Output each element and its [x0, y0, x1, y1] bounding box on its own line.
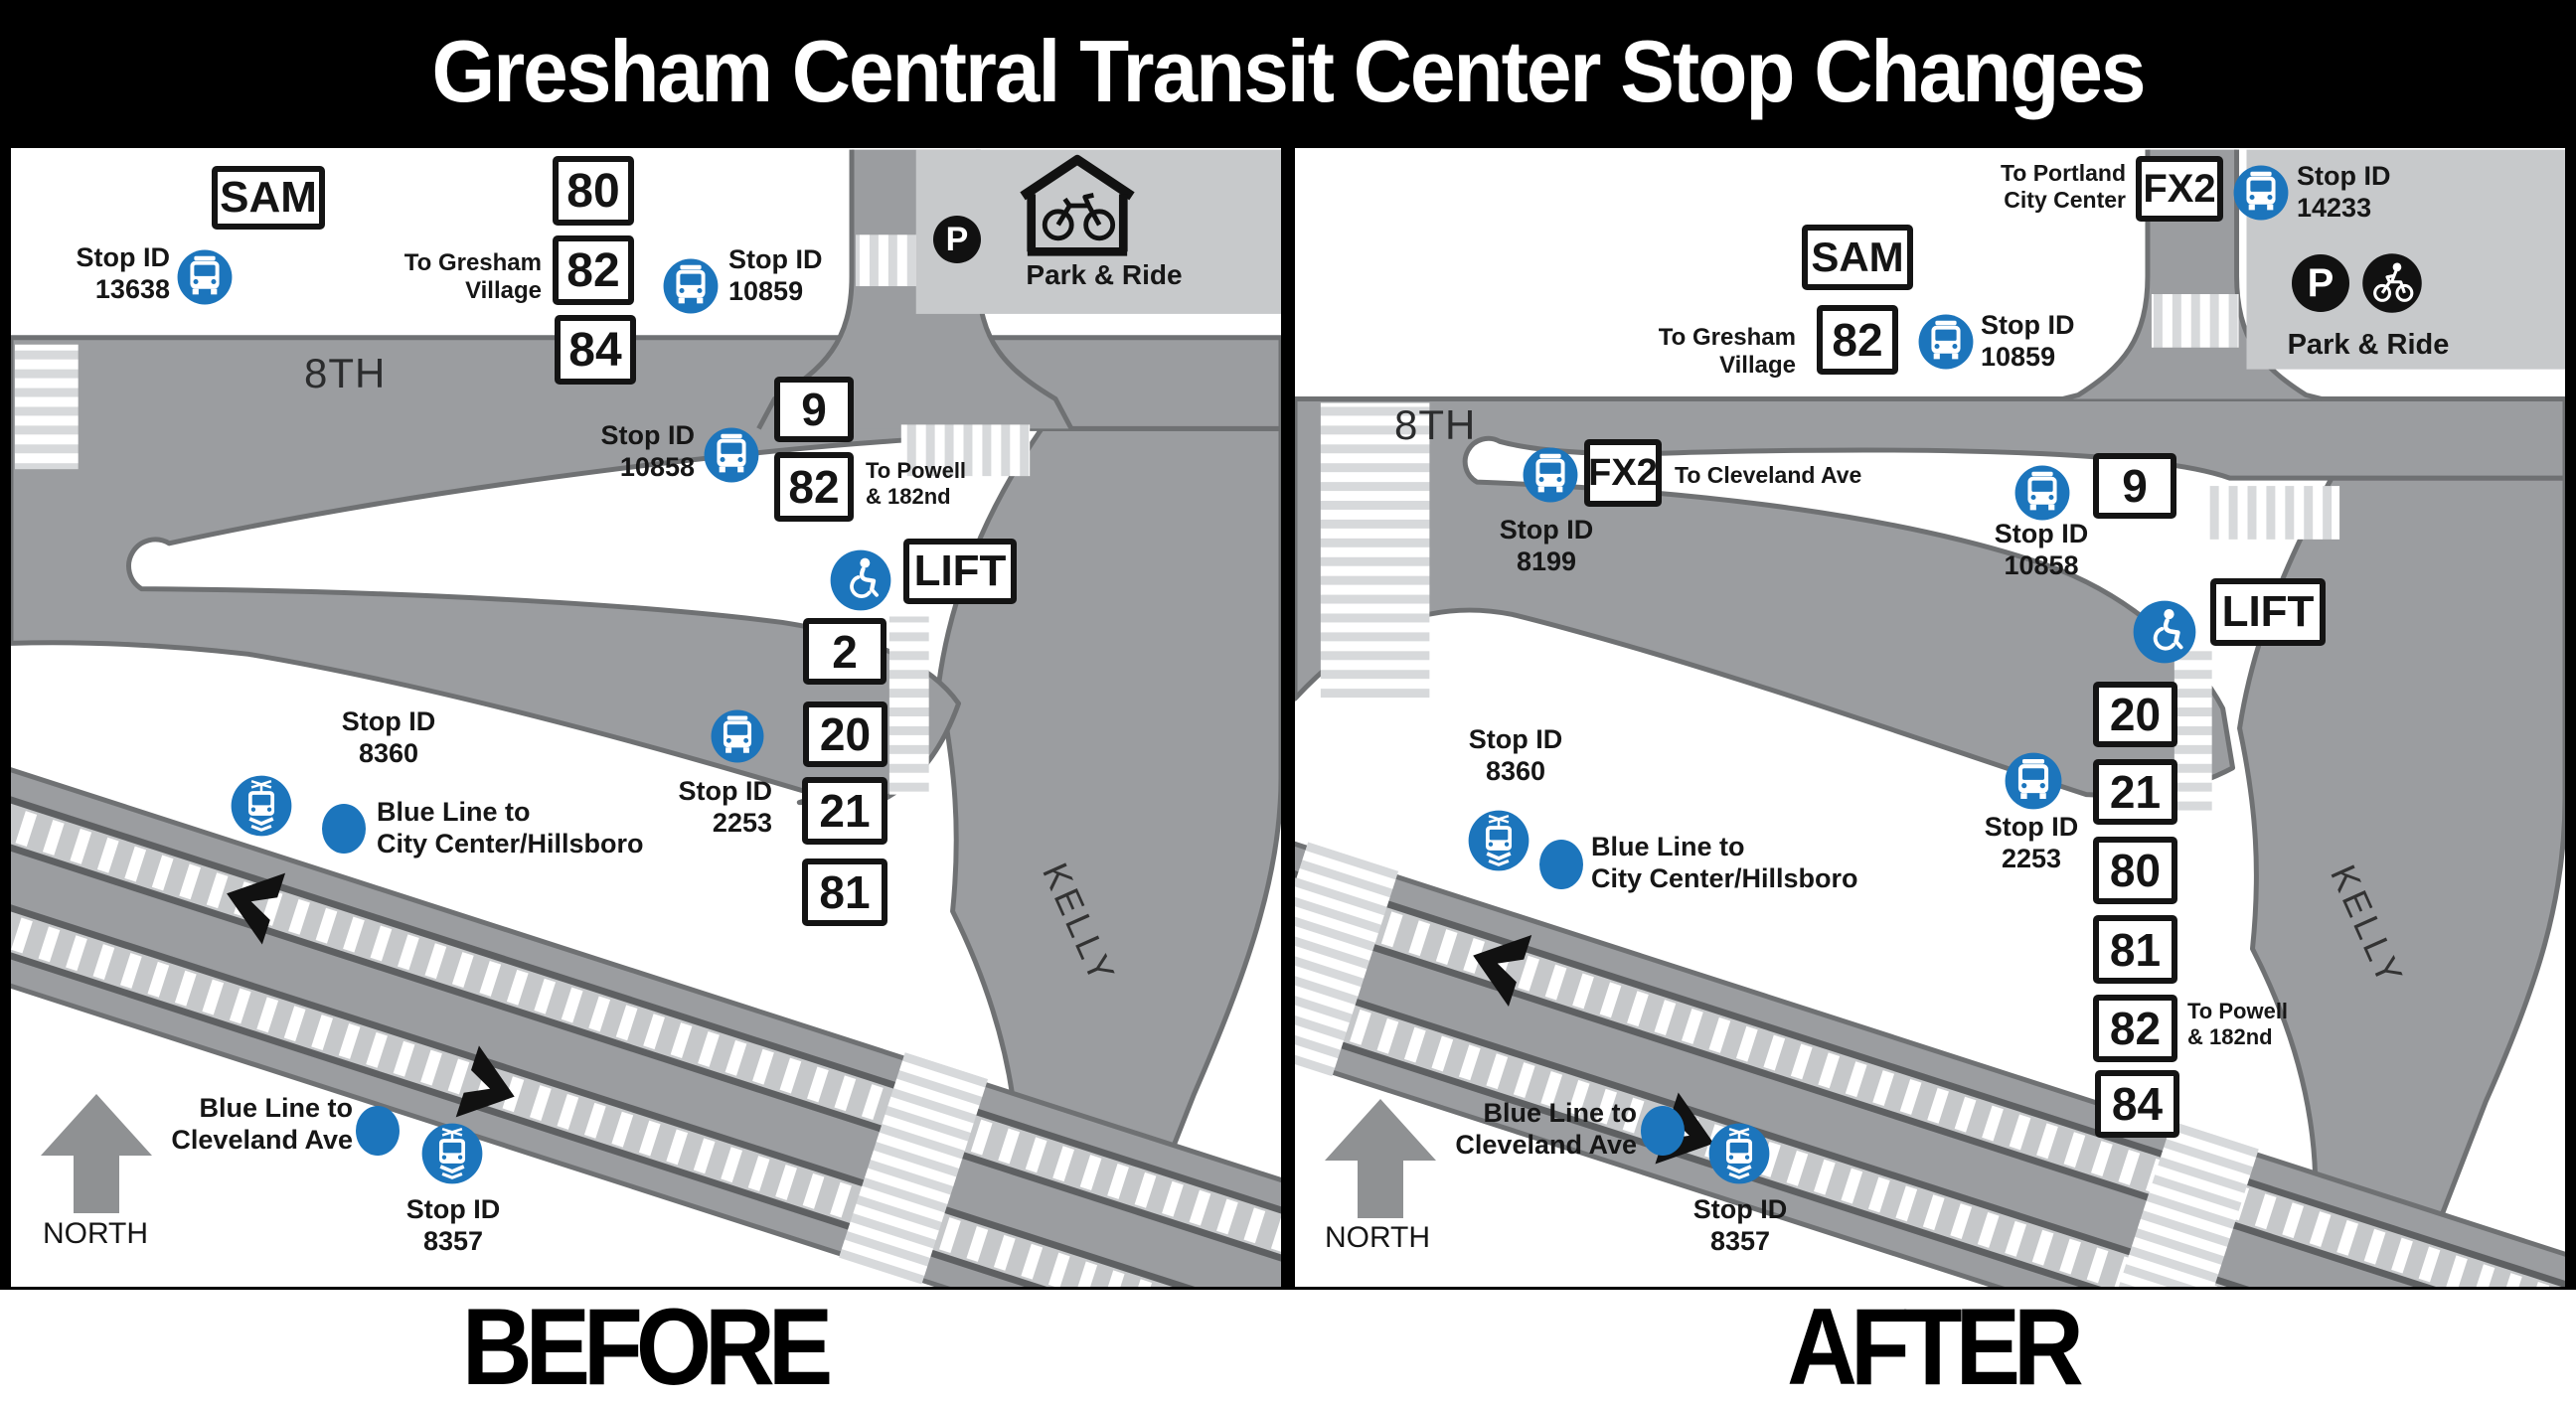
- route-box-81: 81: [802, 858, 887, 926]
- bike-house-icon: [1015, 152, 1140, 259]
- stop-id-13638-label: Stop ID13638: [39, 242, 170, 305]
- infographic: Gresham Central Transit Center Stop Chan…: [0, 0, 2576, 1404]
- train-icon: [1468, 810, 1529, 871]
- blue-line-city-center-label: Blue Line toCity Center/Hillsboro: [377, 797, 720, 859]
- route-box-84: 84: [555, 315, 636, 385]
- route-box-81: 81: [2093, 915, 2177, 984]
- lift-box: LIFT: [903, 539, 1017, 604]
- bus-icon: [704, 427, 759, 483]
- stop-id-14233-label: Stop ID14233: [2297, 161, 2446, 224]
- cyclist-icon: [2361, 252, 2423, 314]
- to-cleveland-label: To Cleveland Ave: [1675, 462, 1923, 489]
- crosswalk-kelly: [2201, 486, 2339, 540]
- route-box-9: 9: [2093, 453, 2176, 519]
- route-box-82: 82: [553, 235, 634, 305]
- page-title: Gresham Central Transit Center Stop Chan…: [431, 22, 2144, 123]
- to-portland-label: To PortlandCity Center: [1927, 160, 2126, 214]
- after-caption-wrap: AFTER: [1288, 1290, 2576, 1404]
- park-ride-label: Park & Ride: [2229, 329, 2507, 362]
- north-label: NORTH: [1313, 1221, 1442, 1255]
- map-panels: SAM Stop ID13638 80 82 84 To GreshamVill…: [0, 145, 2576, 1290]
- stop-id-8357-label: Stop ID8357: [1675, 1194, 1806, 1257]
- stop-id-8360-label: Stop ID8360: [323, 706, 454, 769]
- route-box-84: 84: [2095, 1070, 2179, 1138]
- blue-line-dot: [1641, 1106, 1685, 1156]
- blue-line-cleveland-label: Blue Line toCleveland Ave: [156, 1093, 353, 1156]
- route-box-80: 80: [2093, 837, 2177, 904]
- crosswalk-top-street: [2152, 294, 2239, 348]
- to-powell-label: To Powell& 182nd: [2187, 999, 2319, 1049]
- fx2-route-box: FX2: [2136, 156, 2223, 222]
- train-icon: [231, 775, 292, 837]
- stop-id-8357-label: Stop ID8357: [388, 1194, 519, 1257]
- train-icon: [1708, 1123, 1770, 1184]
- blue-line-dot: [1539, 840, 1583, 889]
- eighth-street-label: 8TH: [1394, 401, 1476, 449]
- wheelchair-icon: [2133, 600, 2196, 664]
- bus-icon: [2233, 165, 2289, 221]
- bus-icon: [2005, 752, 2062, 810]
- parking-icon: P: [2292, 254, 2349, 312]
- route-box-20: 20: [803, 702, 887, 767]
- blue-line-cleveland-label: Blue Line toCleveland Ave: [1440, 1098, 1637, 1161]
- route-box-82: 82: [1817, 305, 1898, 375]
- blue-line-city-center-label: Blue Line toCity Center/Hillsboro: [1591, 832, 1934, 894]
- route-box-21: 21: [802, 777, 887, 845]
- route-box-82b: 82: [2093, 995, 2177, 1062]
- sam-route-box: SAM: [1802, 225, 1913, 290]
- panel-before: SAM Stop ID13638 80 82 84 To GreshamVill…: [8, 145, 1284, 1290]
- wheelchair-icon: [830, 549, 891, 611]
- parking-icon: P: [933, 216, 981, 263]
- north-label: NORTH: [31, 1217, 160, 1251]
- bus-icon: [1523, 447, 1578, 503]
- lift-box: LIFT: [2210, 578, 2326, 646]
- after-caption: AFTER: [1787, 1284, 2077, 1404]
- stop-id-2253-label: Stop ID2253: [1965, 812, 2098, 874]
- stop-id-8199-label: Stop ID8199: [1481, 515, 1612, 577]
- title-bar: Gresham Central Transit Center Stop Chan…: [0, 0, 2576, 145]
- stop-id-10859-label: Stop ID10859: [1981, 310, 2130, 373]
- stop-id-8360-label: Stop ID8360: [1450, 724, 1581, 787]
- crosswalk-west: [15, 345, 79, 469]
- panel-after: To PortlandCity Center FX2 Stop ID14233 …: [1292, 145, 2568, 1290]
- footer-labels: BEFORE AFTER: [0, 1290, 2576, 1404]
- bus-icon: [663, 258, 719, 314]
- bus-icon: [711, 709, 764, 763]
- route-box-2: 2: [803, 618, 886, 685]
- north-arrow-icon: [41, 1094, 152, 1213]
- before-caption: BEFORE: [462, 1284, 826, 1404]
- to-gresham-village-label: To GreshamVillage: [347, 249, 542, 305]
- route-box-9: 9: [774, 377, 854, 442]
- eighth-street-label: 8TH: [304, 350, 386, 397]
- crosswalk-platform: [889, 616, 929, 794]
- before-caption-wrap: BEFORE: [0, 1290, 1288, 1404]
- crosswalk-platform: [2174, 644, 2212, 812]
- route-box-21: 21: [2093, 759, 2177, 825]
- route-box-80: 80: [553, 156, 634, 226]
- bus-icon: [2014, 465, 2070, 521]
- blue-line-dot: [356, 1106, 400, 1156]
- fx2-road-route-box: FX2: [1584, 439, 1662, 507]
- train-icon: [421, 1123, 483, 1184]
- stop-id-10859-label: Stop ID10859: [728, 244, 878, 307]
- bus-icon: [1918, 314, 1974, 370]
- sam-route-box: SAM: [212, 166, 325, 230]
- to-gresham-village-label: To Gresham Village: [1581, 324, 1796, 380]
- bus-icon: [177, 249, 233, 305]
- stop-id-10858-label: Stop ID10858: [1975, 519, 2108, 581]
- north-arrow-icon: [1325, 1099, 1436, 1218]
- park-ride-label: Park & Ride: [945, 259, 1263, 291]
- blue-line-dot: [322, 804, 366, 854]
- route-box-20: 20: [2093, 682, 2177, 747]
- to-powell-label: To Powell& 182nd: [866, 458, 995, 509]
- stop-id-10858-label: Stop ID10858: [560, 420, 695, 483]
- route-box-82b: 82: [774, 452, 854, 522]
